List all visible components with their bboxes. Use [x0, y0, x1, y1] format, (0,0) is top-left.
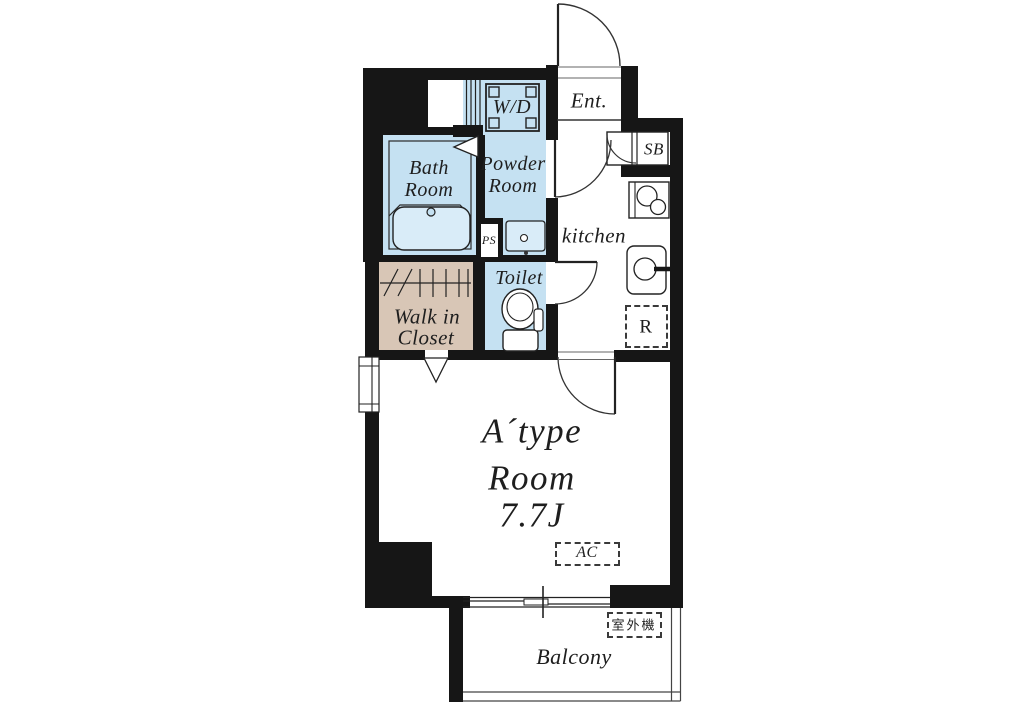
- floor-plan: Ent. W/D SB Bath Room Powder Room kitche…: [0, 0, 1022, 702]
- walk-in-closet-label-line2: Closet: [398, 328, 455, 349]
- toilet-label: Toilet: [495, 268, 543, 288]
- sink-icon: [627, 246, 666, 294]
- refrigerator-label: R: [639, 318, 652, 337]
- entrance-label: Ent.: [571, 91, 607, 112]
- entrance-door-arc: [558, 4, 620, 66]
- outdoor-unit-label: 室外機: [611, 619, 656, 632]
- shoe-box-door-arc: [607, 134, 636, 163]
- wall-segment: [365, 542, 432, 598]
- wall-segment: [621, 165, 672, 177]
- stove-burner: [637, 186, 657, 206]
- main-room-window: [359, 357, 379, 412]
- ac-label: AC: [576, 545, 597, 561]
- toilet-door-arc: [555, 262, 597, 304]
- wall-segment: [546, 65, 558, 140]
- wall-segment: [365, 412, 379, 542]
- room-word-label: Room: [488, 461, 576, 496]
- powder-room-label-line1: Powder: [480, 154, 545, 174]
- wall-segment: [621, 66, 638, 120]
- stove-burner: [651, 200, 666, 215]
- wall-niche: [428, 80, 453, 127]
- powder-room-label-line2: Room: [489, 176, 538, 196]
- shoe-box-divider: [632, 132, 637, 165]
- main-room-door-arc: [558, 357, 615, 414]
- entrance-threshold-lines: [558, 67, 621, 78]
- closet-door-mark: [424, 358, 448, 382]
- pipe-space-label: PS: [482, 234, 496, 246]
- kitchen-label: kitchen: [562, 226, 626, 247]
- wall-segment: [614, 350, 683, 362]
- wall-segment: [610, 585, 683, 608]
- bath-room-label-line1: Bath: [409, 158, 449, 178]
- wall-segment: [365, 255, 379, 358]
- wall-segment: [363, 68, 557, 80]
- room-type-label: A´type: [482, 414, 582, 449]
- main-room-threshold-lines: [558, 352, 614, 360]
- main-room-window-mullions: [359, 357, 379, 412]
- room-size-label: 7.7J: [499, 498, 564, 533]
- stove-icon: [629, 182, 669, 218]
- wall-segment: [476, 135, 485, 218]
- sliding-door-lock: [524, 599, 548, 605]
- walk-in-closet-label-line1: Walk in: [394, 307, 460, 328]
- wall-segment: [363, 255, 557, 262]
- wall-segment: [365, 350, 425, 360]
- sink-drain: [634, 258, 656, 280]
- shoe-box-label: SB: [644, 141, 664, 158]
- balcony-label: Balcony: [536, 646, 612, 668]
- washer-dryer-label: W/D: [493, 97, 531, 117]
- wall-segment: [473, 262, 485, 350]
- wall-segment: [546, 198, 558, 262]
- sliding-door-lines: [463, 598, 610, 608]
- wall-segment: [448, 350, 558, 360]
- powder-door-arc: [555, 140, 611, 197]
- wall-segment: [449, 596, 463, 702]
- wall-segment: [363, 135, 383, 255]
- bath-room-label-line2: Room: [405, 180, 454, 200]
